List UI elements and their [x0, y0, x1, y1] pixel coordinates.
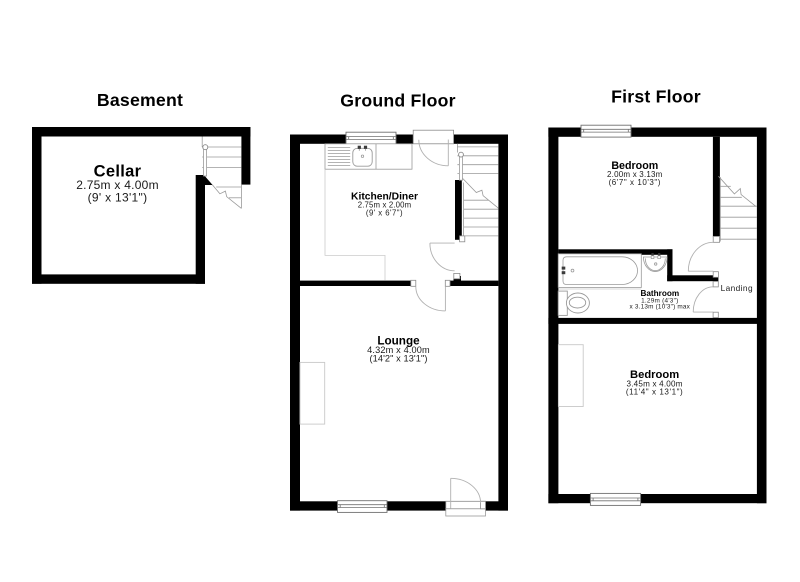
svg-text:Landing: Landing: [721, 283, 753, 293]
svg-text:(6'7" x 10'3"): (6'7" x 10'3"): [609, 178, 661, 187]
svg-text:(9' x 6'7"): (9' x 6'7"): [366, 209, 403, 218]
svg-text:First Floor: First Floor: [611, 87, 701, 107]
svg-text:Ground Floor: Ground Floor: [340, 91, 455, 111]
svg-text:Basement: Basement: [97, 90, 183, 110]
svg-text:(9' x 13'1"): (9' x 13'1"): [88, 190, 148, 204]
svg-text:(14'2" x 13'1"): (14'2" x 13'1"): [369, 353, 427, 363]
svg-text:(11'4" x 13'1"): (11'4" x 13'1"): [626, 387, 683, 396]
svg-text:x 3.13m (10'3") max: x 3.13m (10'3") max: [630, 304, 691, 311]
